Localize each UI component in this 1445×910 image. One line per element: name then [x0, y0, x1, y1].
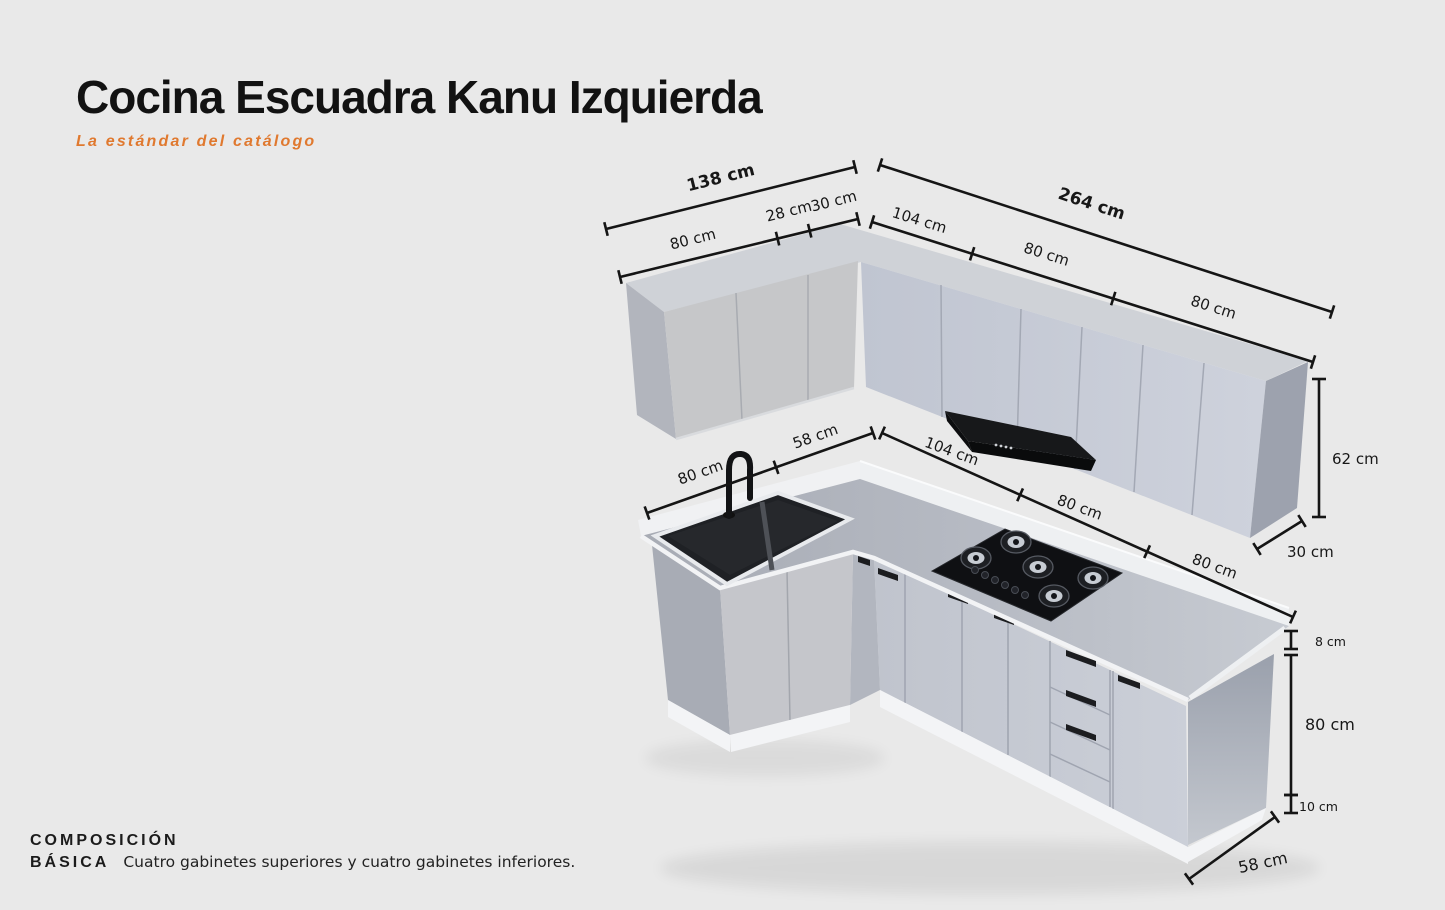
dim-label-upper-right-seg-80b: 80 cm — [1189, 292, 1239, 323]
dim-label-upper-right-seg-80a: 80 cm — [1022, 239, 1072, 270]
composition-heading-line2: BÁSICA — [30, 854, 109, 872]
dim-label-upper-depth: 30 cm — [1287, 543, 1334, 561]
dim-label-counter-left-seg-80: 80 cm — [675, 456, 725, 489]
dim-label-upper-left-seg-30: 30 cm — [809, 187, 859, 216]
dim-label-upper-total-right: 264 cm — [1056, 184, 1128, 224]
footer: COMPOSICIÓN BÁSICA Cuatro gabinetes supe… — [30, 830, 575, 872]
dim-label-backsplash-height: 8 cm — [1315, 634, 1346, 649]
dim-label-upper-total-left: 138 cm — [685, 160, 757, 196]
dim-label-upper-right-seg-104: 104 cm — [890, 203, 949, 237]
dim-label-upper-left-seg-80: 80 cm — [668, 225, 718, 254]
catalog-page: Cocina Escuadra Kanu Izquierda La estánd… — [0, 0, 1445, 910]
composition-heading-line1: COMPOSICIÓN — [30, 830, 575, 851]
kitchen-dimension-diagram: 138 cm 80 cm 28 cm 30 cm 264 cm 104 cm 8… — [0, 0, 1445, 910]
dim-label-plinth-height: 10 cm — [1299, 799, 1338, 814]
dim-label-base-height: 80 cm — [1305, 715, 1355, 734]
dim-label-upper-left-seg-28: 28 cm — [764, 197, 814, 226]
dim-label-counter-right-seg-80a: 80 cm — [1055, 491, 1105, 524]
dim-label-upper-height: 62 cm — [1332, 450, 1379, 468]
composition-description: Cuatro gabinetes superiores y cuatro gab… — [123, 853, 575, 871]
